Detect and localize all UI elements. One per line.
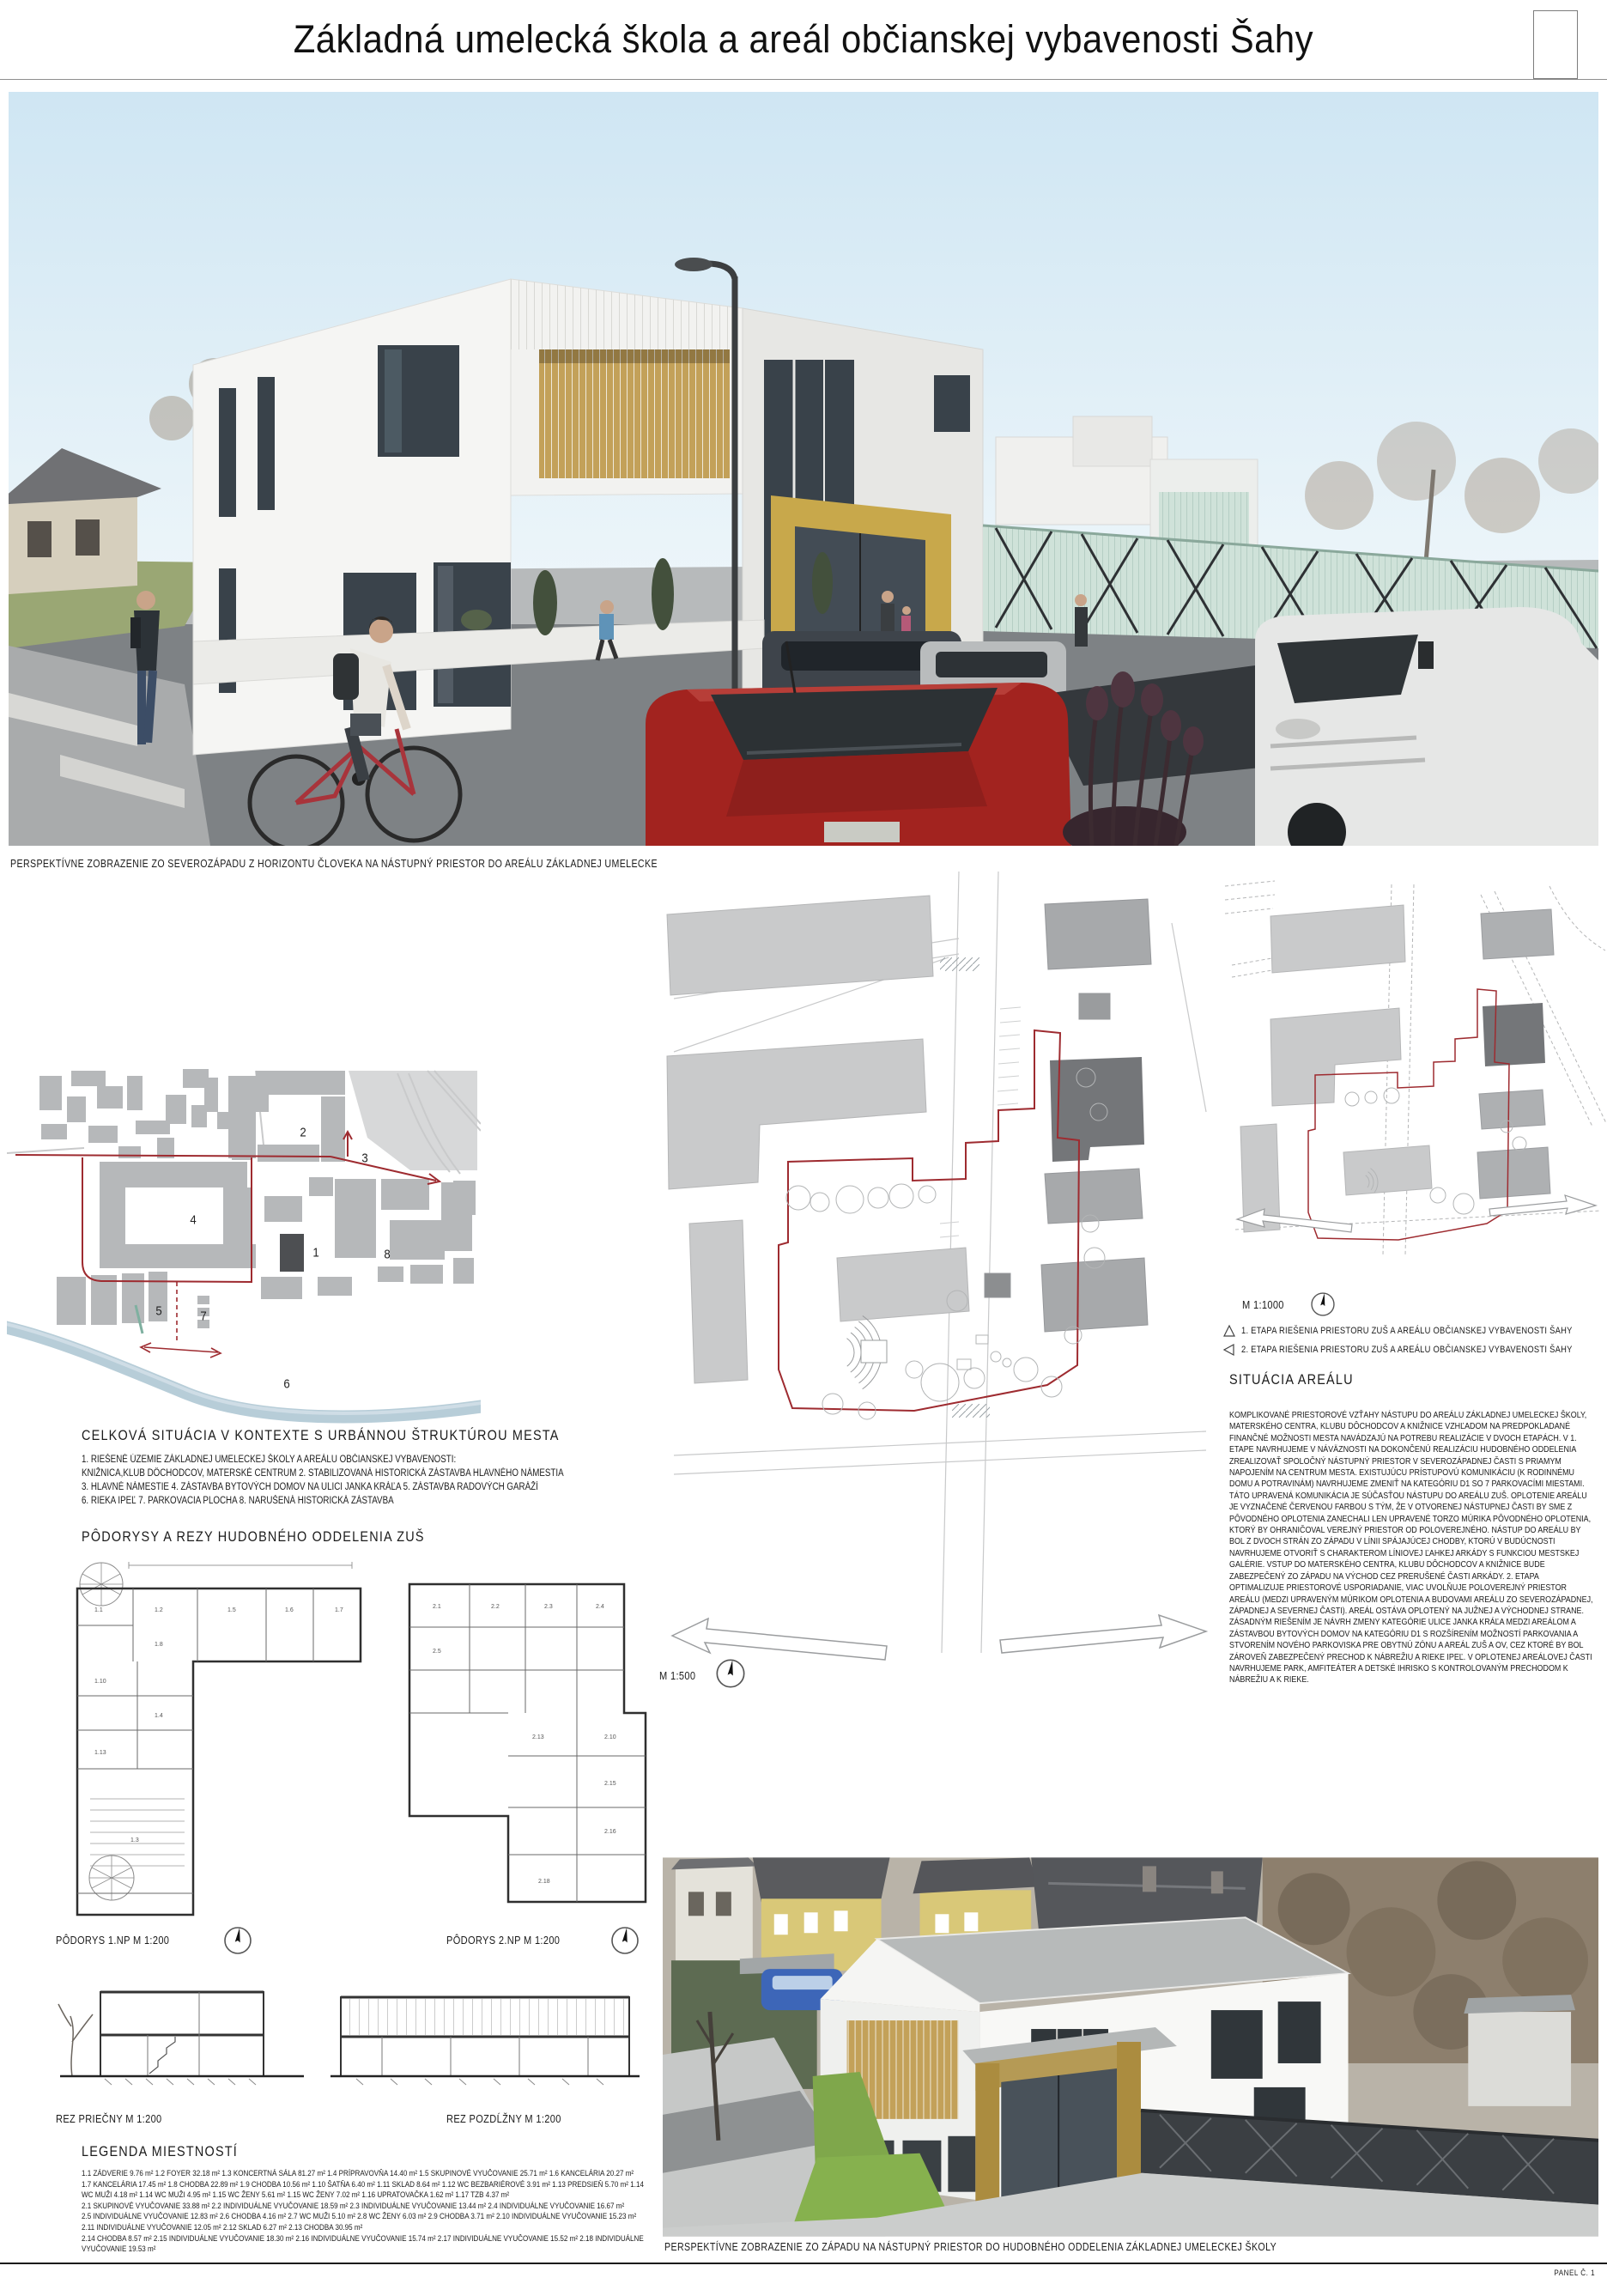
section-tree bbox=[58, 2004, 93, 2076]
room-legend-line: WC MUŽI 4.18 m² 1.14 WC MUŽI 4.95 m² 1.1… bbox=[82, 2190, 644, 2202]
room-label: 1.5 bbox=[227, 1607, 236, 1613]
area-description: KOMPLIKOVANÉ PRIESTOROVÉ VZŤAHY NÁSTUPU … bbox=[1229, 1410, 1594, 1686]
plan2-partitions bbox=[409, 1584, 646, 1902]
header-divider bbox=[0, 79, 1607, 80]
context-legend-line: KNIŽNICA,KLUB DÔCHODCOV, MATERSKÉ CENTRU… bbox=[82, 1467, 564, 1480]
room-label: 1.3 bbox=[130, 1837, 139, 1843]
room-label: 2.13 bbox=[532, 1734, 544, 1740]
context-legend-line: 3. HLAVNÉ NÁMESTIE 4. ZÁSTAVBA BYTOVÝCH … bbox=[82, 1480, 564, 1494]
room-legend-line: 1.7 KANCELÁRIA 17.45 m² 1.8 CHODBA 22.89… bbox=[82, 2180, 644, 2191]
area-plan-scale: M 1:1000 bbox=[1242, 1298, 1284, 1311]
page-title: Základná umelecká škola a areál občiansk… bbox=[294, 17, 1313, 62]
map-marker: 6 bbox=[283, 1377, 289, 1392]
site-plan-500 bbox=[657, 854, 1215, 1661]
zus-building-dark bbox=[280, 1234, 304, 1272]
context-map: 2 3 4 1 8 5 7 6 bbox=[7, 1052, 481, 1428]
section1-label: REZ PRIEČNY M 1:200 bbox=[56, 2112, 162, 2125]
room-label: 2.18 bbox=[538, 1879, 550, 1885]
area-heading: SITUÁCIA AREÁLU bbox=[1229, 1371, 1354, 1388]
room-label: 2.16 bbox=[604, 1829, 616, 1835]
room-legend-heading: LEGENDA MIESTNOSTÍ bbox=[82, 2143, 238, 2160]
room-label: 1.1 bbox=[94, 1607, 103, 1613]
context-legend-line: 1. RIEŠENÉ ÚZEMIE ZÁKLADNEJ UMELECKEJ ŠK… bbox=[82, 1453, 564, 1467]
north-icon bbox=[711, 1654, 750, 1693]
room-legend-line: 1.1 ZÁDVERIE 9.76 m² 1.2 FOYER 32.18 m² … bbox=[82, 2169, 644, 2180]
plan1-partitions bbox=[77, 1588, 313, 1893]
context-heading: CELKOVÁ SITUÁCIA V KONTEXTE S URBÁNNOU Š… bbox=[82, 1427, 560, 1444]
etapa2-triangle-icon bbox=[1222, 1343, 1236, 1357]
map-marker: 4 bbox=[190, 1213, 196, 1228]
north-icon bbox=[219, 1922, 257, 1959]
header: Základná umelecká škola a areál občiansk… bbox=[0, 0, 1607, 79]
map-marker: 8 bbox=[384, 1248, 390, 1262]
poster-panel: Základná umelecká škola a areál občiansk… bbox=[0, 0, 1607, 2296]
concert-hall-seats bbox=[90, 1799, 185, 1866]
room-label: 2.10 bbox=[604, 1734, 616, 1740]
room-label: 1.8 bbox=[155, 1642, 163, 1648]
room-label: 2.1 bbox=[433, 1604, 441, 1610]
site-plan-scale: M 1:500 bbox=[659, 1669, 695, 1682]
room-legend: 1.1 ZÁDVERIE 9.76 m² 1.2 FOYER 32.18 m² … bbox=[82, 2169, 743, 2256]
area-plan-1000 bbox=[1223, 869, 1607, 1266]
room-legend-line: VYUČOVANIE 19.53 m² bbox=[82, 2244, 644, 2256]
context-map-drawing bbox=[7, 1052, 481, 1428]
north-icon bbox=[606, 1922, 644, 1959]
room-label: 2.5 bbox=[433, 1649, 441, 1655]
map-marker: 1 bbox=[312, 1246, 318, 1260]
etapa1-triangle-icon bbox=[1222, 1324, 1236, 1338]
plan1-label: PÔDORYS 1.NP M 1:200 bbox=[56, 1934, 169, 1947]
plan2-label: PÔDORYS 2.NP M 1:200 bbox=[446, 1934, 560, 1947]
room-label: 2.2 bbox=[491, 1604, 500, 1610]
main-photo-caption: PERSPEKTÍVNE ZOBRAZENIE ZO SEVEROZÁPADU … bbox=[10, 858, 697, 870]
main-perspective-rendering bbox=[9, 92, 1598, 846]
etapa1-label: 1. ETAPA RIEŠENIA PRIESTORU ZUŠ A AREÁLU… bbox=[1241, 1326, 1573, 1336]
ground-hatch bbox=[105, 2079, 256, 2085]
room-legend-line: 2.1 SKUPINOVÉ VYUČOVANIE 33.88 m² 2.2 IN… bbox=[82, 2202, 644, 2213]
footer-divider bbox=[0, 2263, 1607, 2264]
section-priecny bbox=[53, 1975, 311, 2099]
room-label: 1.2 bbox=[155, 1607, 163, 1613]
room-label: 1.6 bbox=[285, 1607, 294, 1613]
map-marker: 7 bbox=[200, 1309, 206, 1324]
room-label: 2.15 bbox=[604, 1781, 616, 1787]
etapa2-label: 2. ETAPA RIEŠENIA PRIESTORU ZUŠ A AREÁLU… bbox=[1241, 1345, 1573, 1355]
room-label: 1.13 bbox=[94, 1750, 106, 1756]
plans-heading: PÔDORYSY A REZY HUDOBNÉHO ODDELENIA ZUŠ bbox=[82, 1528, 425, 1546]
floor-plan-1np: 1.1 1.2 1.5 1.6 1.7 1.8 1.10 1.4 1.13 1.… bbox=[52, 1558, 378, 1928]
map-marker: 5 bbox=[155, 1304, 161, 1319]
context-legend-line: 6. RIEKA IPEĽ 7. PARKOVACIA PLOCHA 8. NA… bbox=[82, 1494, 564, 1508]
white-van bbox=[1255, 607, 1598, 846]
map-marker: 2 bbox=[300, 1126, 306, 1140]
panel-number: PANEL Č. 1 bbox=[1554, 2269, 1595, 2278]
room-legend-line: 2.14 CHODBA 8.57 m² 2.15 INDIVIDUÁLNE VY… bbox=[82, 2234, 644, 2245]
room-label: 1.4 bbox=[155, 1713, 163, 1719]
spiral-stair bbox=[80, 1563, 123, 1606]
room-label: 2.3 bbox=[544, 1604, 553, 1610]
north-icon bbox=[1307, 1288, 1339, 1321]
section-pozdlzny bbox=[330, 1975, 640, 2099]
room-label: 1.10 bbox=[94, 1679, 106, 1685]
room-legend-line: 2.5 INDIVIDUÁLNE VYUČOVANIE 12.83 m² 2.6… bbox=[82, 2212, 644, 2223]
ground-hatch bbox=[356, 2079, 603, 2085]
music-school-dark bbox=[1483, 1003, 1545, 1066]
west-photo-caption: PERSPEKTÍVNE ZOBRAZENIE ZO ZÁPADU NA NÁS… bbox=[664, 2241, 1277, 2253]
section2-label: REZ POZDĹŽNY M 1:200 bbox=[446, 2112, 561, 2125]
context-legend: 1. RIEŠENÉ ÚZEMIE ZÁKLADNEJ UMELECKEJ ŠK… bbox=[82, 1453, 649, 1508]
room-label: 1.7 bbox=[335, 1607, 343, 1613]
title-corner-box bbox=[1533, 10, 1578, 79]
room-legend-line: 2.11 INDIVIDUÁLNE VYUČOVANIE 12.05 m² 2.… bbox=[82, 2223, 644, 2234]
floor-plan-2np: 2.1 2.2 2.3 2.4 2.5 2.13 2.10 2.15 2.16 … bbox=[397, 1558, 654, 1928]
map-marker: 3 bbox=[361, 1151, 367, 1166]
west-perspective-rendering bbox=[663, 1857, 1598, 2237]
room-label: 2.4 bbox=[596, 1604, 604, 1610]
